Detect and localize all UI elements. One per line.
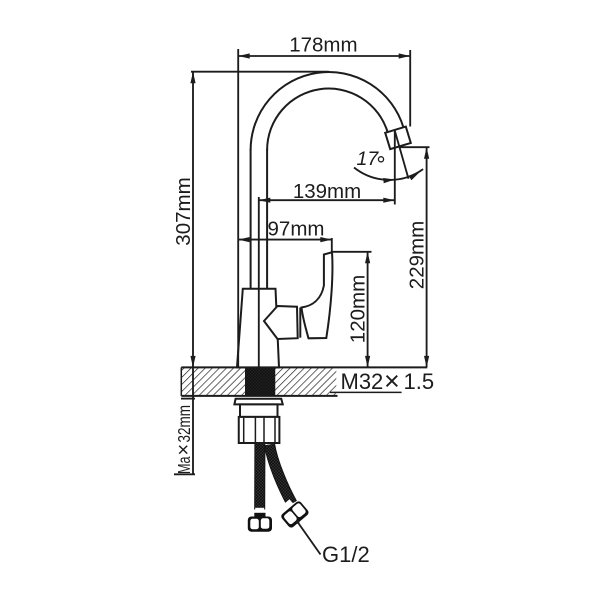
svg-text:97mm: 97mm [268,218,325,241]
svg-text:229mm: 229mm [406,221,429,289]
svg-text:Ma: Ma [174,456,194,474]
svg-text:32mm: 32mm [174,405,194,443]
svg-text:120mm: 120mm [347,275,370,343]
svg-text:M32: M32 [341,369,384,394]
svg-text:178mm: 178mm [289,34,357,57]
svg-text:G1/2: G1/2 [322,542,370,567]
svg-text:1.5: 1.5 [404,369,435,394]
svg-text:×: × [173,444,195,456]
svg-text:×: × [384,366,400,396]
svg-text:139mm: 139mm [293,180,361,203]
svg-text:307mm: 307mm [172,177,195,245]
svg-text:17: 17 [357,148,380,170]
